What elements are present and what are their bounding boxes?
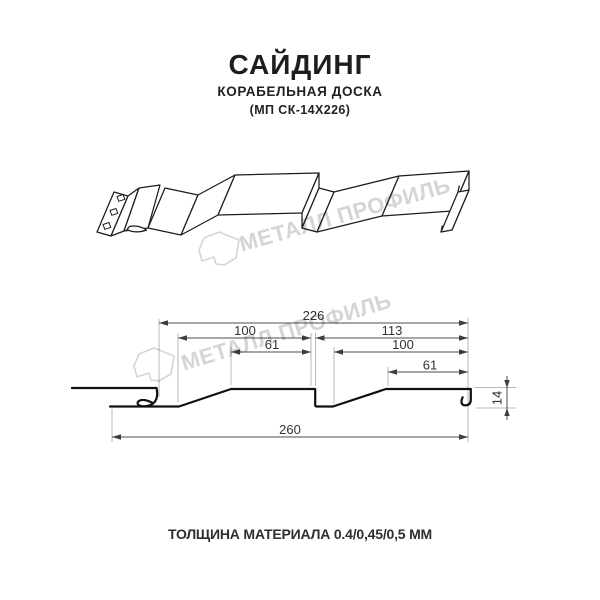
dim-260: 260 <box>279 422 301 437</box>
dim-113: 113 <box>382 323 403 338</box>
product-drawing-page: САЙДИНГ КОРАБЕЛЬНАЯ ДОСКА (МП СК-14Х226) <box>0 0 600 600</box>
dim-14: 14 <box>490 391 505 405</box>
drawings-canvas: 226 100 61 113 100 61 260 14 <box>0 0 600 600</box>
extension-lines <box>112 318 516 442</box>
3d-panel-drawing <box>97 171 469 236</box>
profile-main-line <box>110 389 471 407</box>
material-thickness-note: ТОЛЩИНА МАТЕРИАЛА 0.4/0,45/0,5 ММ <box>0 526 600 542</box>
dim-100-right: 100 <box>392 337 414 352</box>
dimension-lines <box>112 323 507 437</box>
dim-100-left: 100 <box>234 323 256 338</box>
profile-lock-curl <box>138 388 158 406</box>
dim-61-right: 61 <box>423 358 437 373</box>
dim-226: 226 <box>303 308 325 323</box>
profile-cross-section <box>72 388 471 407</box>
dim-61-left: 61 <box>265 337 279 352</box>
